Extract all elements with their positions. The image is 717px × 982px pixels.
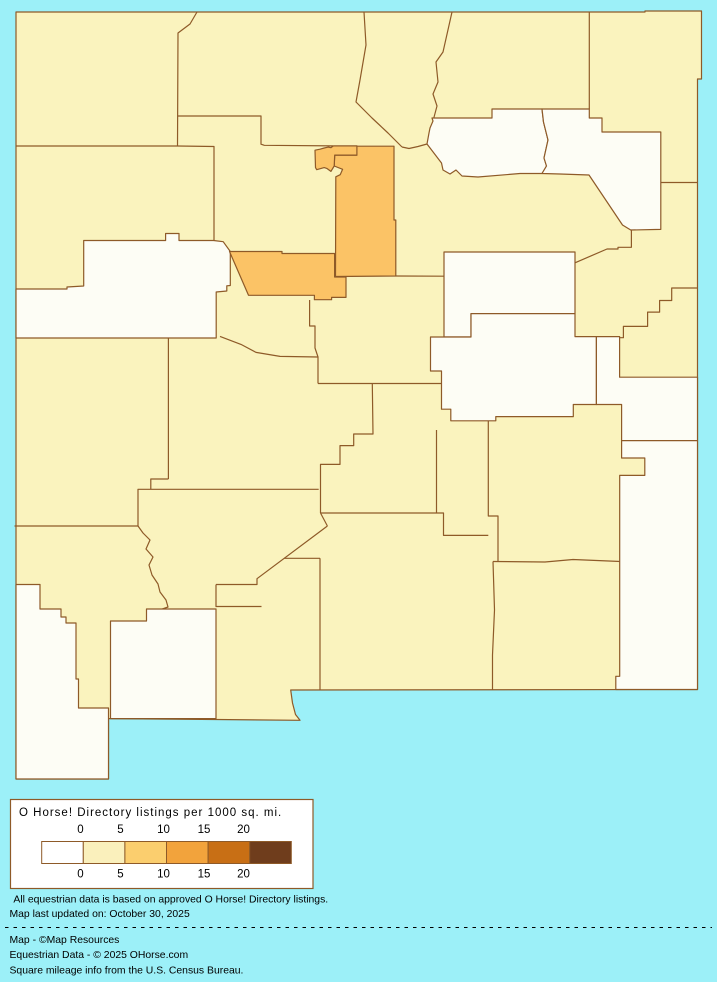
svg-text:5: 5 (117, 869, 123, 881)
svg-text:Map - ©Map Resources: Map - ©Map Resources (10, 935, 120, 946)
svg-text:15: 15 (198, 869, 211, 881)
svg-text:O Horse! Directory listings pe: O Horse! Directory listings per 1000 sq.… (19, 807, 282, 819)
svg-text:20: 20 (237, 824, 250, 836)
svg-text:0: 0 (77, 824, 83, 836)
svg-text:20: 20 (237, 869, 250, 881)
svg-text:10: 10 (157, 824, 170, 836)
svg-text:Map last updated on: October: Map last updated on: October 30, 2025 (10, 909, 190, 920)
svg-text:Equestrian Data - © 2025 OHors: Equestrian Data - © 2025 OHorse.com (10, 950, 189, 961)
svg-text:10: 10 (157, 869, 170, 881)
svg-text:0: 0 (77, 869, 83, 881)
svg-text:Square mileage info from the U: Square mileage info from the U.S. Census… (10, 966, 244, 977)
svg-text:15: 15 (198, 824, 211, 836)
svg-text:All equestrian data is based o: All equestrian data is based on approved… (13, 895, 328, 906)
svg-text:5: 5 (117, 824, 123, 836)
